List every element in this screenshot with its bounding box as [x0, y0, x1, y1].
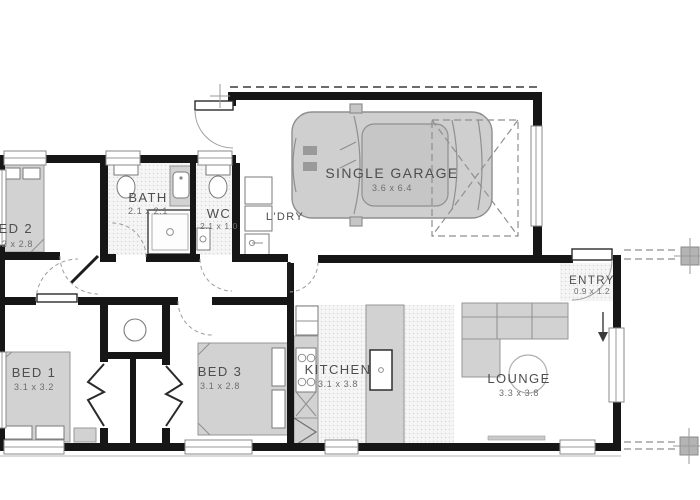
bed3-door [178, 301, 212, 335]
wc-label: WC [207, 206, 231, 221]
bed1-label: BED 1 [12, 365, 57, 380]
bed3-dims: 3.1 x 2.8 [200, 381, 240, 391]
wc-dims: 2.1 x 1.0 [200, 221, 238, 231]
shower-symbol [148, 210, 192, 254]
kitchen-label: KITCHEN [305, 362, 372, 377]
window-bath-north [106, 151, 140, 165]
window-bed1-south [4, 440, 64, 454]
floor-plan-svg: BED 2 3.2 x 2.8 BATH 2.1 x 2.1 WC 2.1 x … [0, 0, 700, 500]
laundry-label: L'DRY [266, 211, 304, 223]
sofa-symbol [462, 303, 568, 377]
wc-basin-symbol [197, 228, 210, 250]
window-bed2-north [4, 151, 46, 165]
kitchen-island [366, 305, 404, 447]
bed3-label: BED 3 [198, 364, 243, 379]
bed3-wardrobe-bifold [166, 366, 182, 426]
garage-dims: 3.6 x 6.4 [372, 183, 412, 193]
hot-water-cylinder-symbol [124, 319, 146, 341]
bed2-label: BED 2 [0, 221, 33, 236]
window-lounge-east [609, 328, 624, 402]
kitchen-dims: 3.1 x 3.8 [318, 379, 358, 389]
bed2-door [60, 256, 98, 294]
garage-door-panel [531, 126, 542, 226]
floor-plan: BED 2 3.2 x 2.8 BATH 2.1 x 2.1 WC 2.1 x … [0, 0, 700, 500]
bed1-wardrobe-bifold [88, 364, 104, 426]
window-wc-north [198, 151, 232, 165]
bed1-bench-symbol [74, 428, 96, 442]
entry-direction-arrow [598, 312, 608, 342]
window-lounge-south [560, 440, 595, 454]
entry-label: ENTRY [569, 275, 615, 287]
bed2-dims: 3.2 x 2.8 [0, 239, 33, 249]
bath-label: BATH [128, 190, 167, 205]
bath-vanity-symbol [170, 166, 192, 206]
entry-dims: 0.9 x 1.2 [574, 287, 610, 296]
window-bed3-south [185, 440, 252, 454]
bath-dims: 2.1 x 2.1 [128, 206, 168, 216]
window-bed1-west [0, 352, 6, 428]
lounge-dims: 3.3 x 3.8 [499, 388, 539, 398]
bed1-dims: 3.1 x 3.2 [14, 382, 54, 392]
window-kitchen-south [325, 440, 358, 454]
lounge-label: LOUNGE [487, 371, 550, 386]
garage-label: SINGLE GARAGE [325, 165, 458, 181]
tv-unit-symbol [488, 436, 545, 440]
wc-door [200, 259, 232, 291]
laundry-door [195, 101, 233, 148]
